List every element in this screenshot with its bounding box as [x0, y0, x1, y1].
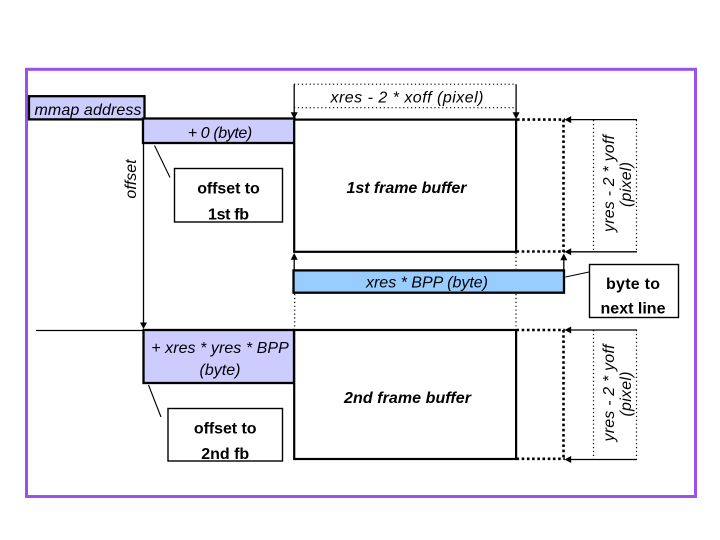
svg-text:1st fb: 1st fb: [208, 207, 249, 224]
svg-text:(byte): (byte): [200, 362, 241, 379]
svg-text:1st frame buffer: 1st frame buffer: [347, 180, 468, 197]
svg-text:2nd frame buffer: 2nd frame buffer: [343, 390, 472, 407]
svg-text:yres - 2 * yoff: yres - 2 * yoff: [601, 133, 618, 233]
svg-text:xres - 2 * xoff (pixel): xres - 2 * xoff (pixel): [330, 90, 484, 107]
svg-text:+ xres * yres * BPP: + xres * yres * BPP: [151, 340, 289, 357]
svg-text:2nd fb: 2nd fb: [201, 446, 249, 463]
svg-text:next line: next line: [601, 301, 666, 318]
svg-text:xres * BPP (byte): xres * BPP (byte): [365, 275, 488, 292]
svg-text:byte to: byte to: [606, 276, 660, 293]
svg-text:+ 0 (byte): + 0 (byte): [188, 125, 253, 142]
svg-text:offset: offset: [123, 159, 140, 199]
svg-text:mmap address: mmap address: [35, 102, 142, 119]
svg-text:(pixel): (pixel): [618, 372, 635, 417]
svg-text:offset to: offset to: [194, 421, 257, 438]
svg-text:offset to: offset to: [197, 181, 260, 198]
svg-text:(pixel): (pixel): [618, 162, 635, 207]
svg-text:yres - 2 * yoff: yres - 2 * yoff: [601, 343, 618, 443]
